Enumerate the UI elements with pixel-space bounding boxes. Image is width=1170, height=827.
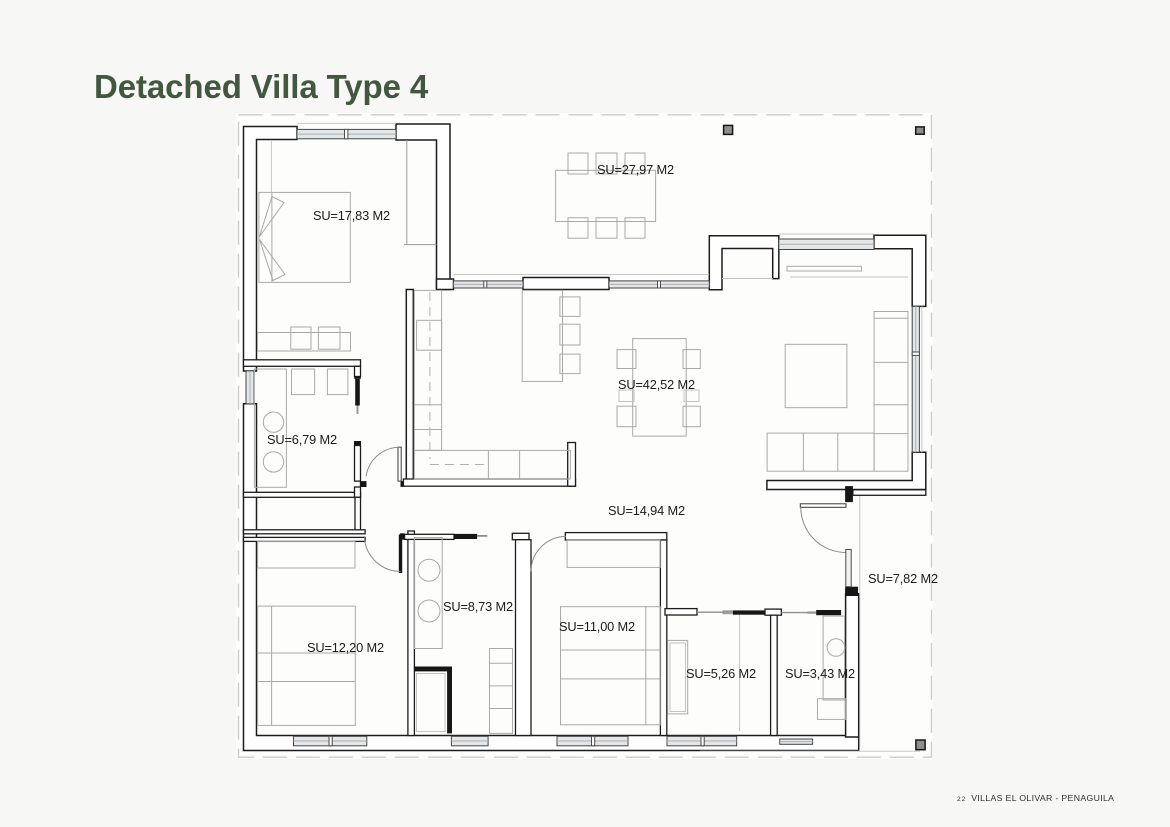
svg-text:SU=12,20 M2: SU=12,20 M2 [307,640,384,655]
svg-text:SU=6,79 M2: SU=6,79 M2 [267,432,337,447]
svg-text:SU=8,73 M2: SU=8,73 M2 [443,599,513,614]
svg-text:SU=27,97 M2: SU=27,97 M2 [597,162,674,177]
svg-text:SU=7,82 M2: SU=7,82 M2 [868,571,938,586]
svg-text:SU=14,94 M2: SU=14,94 M2 [608,503,685,518]
svg-text:SU=3,43 M2: SU=3,43 M2 [785,666,855,681]
svg-text:SU=5,26 M2: SU=5,26 M2 [686,666,756,681]
svg-text:SU=17,83 M2: SU=17,83 M2 [313,208,390,223]
svg-text:SU=42,52 M2: SU=42,52 M2 [618,377,695,392]
svg-text:SU=11,00 M2: SU=11,00 M2 [559,619,635,634]
